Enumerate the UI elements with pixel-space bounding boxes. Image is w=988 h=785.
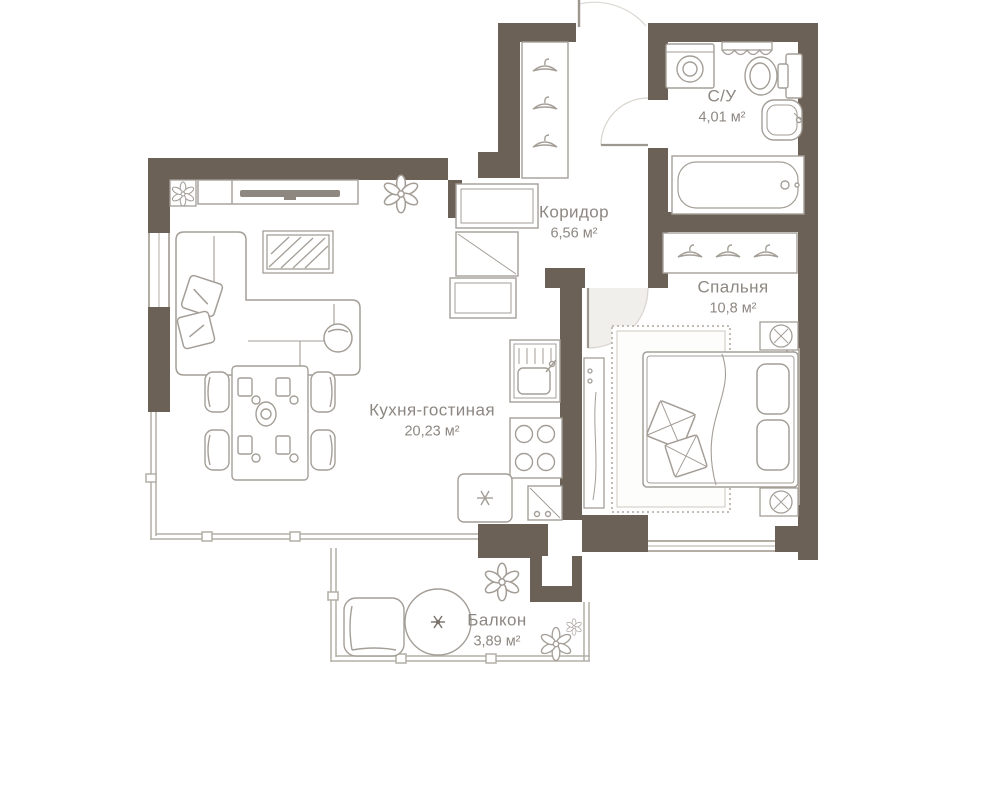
toilet	[745, 54, 802, 98]
bathtub	[672, 156, 804, 214]
bathroom-door	[601, 98, 648, 145]
tall-cabinet	[584, 358, 604, 508]
room-name: Спальня	[697, 278, 768, 298]
corner-plant	[170, 180, 196, 206]
room-area: 20,23 м²	[369, 424, 495, 440]
flower-icon	[484, 563, 521, 601]
kitchen-counter	[450, 278, 516, 318]
dining-chair	[311, 372, 335, 412]
bathroom-sink	[762, 100, 802, 140]
room-name: Коридор	[539, 203, 609, 223]
label-bedroom: Спальня 10,8 м²	[697, 278, 768, 317]
bed	[643, 352, 798, 487]
hall-plant	[383, 175, 420, 213]
entrance-door	[579, 0, 646, 27]
stove	[510, 418, 562, 478]
wall-art	[263, 231, 333, 273]
pillow	[757, 364, 789, 414]
room-area: 6,56 м²	[539, 226, 609, 242]
kitchen-sink	[510, 340, 560, 402]
room-area: 4,01 м²	[698, 110, 745, 126]
entry-wardrobe	[522, 42, 568, 178]
flower-icon	[566, 619, 582, 636]
room-name: Балкон	[467, 611, 526, 631]
round-pillow	[324, 324, 352, 352]
room-area: 10,8 м²	[697, 301, 768, 317]
label-corridor: Коридор 6,56 м²	[539, 203, 609, 242]
nightstand-top	[760, 322, 798, 350]
kitchen-upper-cabinets	[456, 184, 538, 276]
furniture-layer	[0, 0, 988, 785]
label-bathroom: С/У 4,01 м²	[698, 87, 745, 126]
dining-set	[205, 366, 335, 480]
tv-console	[198, 180, 358, 204]
label-kitchen-living: Кухня-гостиная 20,23 м²	[369, 401, 495, 440]
washing-machine	[666, 44, 714, 88]
room-name: С/У	[698, 87, 745, 107]
nightstand-bottom	[760, 488, 798, 516]
pillow	[757, 420, 789, 470]
bedroom-wardrobe	[663, 233, 797, 273]
plant-table	[458, 474, 512, 522]
room-area: 3,89 м²	[467, 634, 526, 650]
room-name: Кухня-гостиная	[369, 401, 495, 421]
label-balcony: Балкон 3,89 м²	[467, 611, 526, 650]
bathroom-shelf	[722, 42, 772, 55]
balcony-beanbag	[344, 598, 404, 656]
dining-chair	[205, 430, 229, 470]
dining-chair	[205, 372, 229, 412]
balcony-pouf	[405, 589, 471, 655]
dining-chair	[311, 430, 335, 470]
pillow	[177, 311, 216, 350]
floor-plan: Коридор 6,56 м² С/У 4,01 м² Спальня 10,8…	[0, 0, 988, 785]
kitchen-lower-cabinet	[528, 486, 562, 520]
